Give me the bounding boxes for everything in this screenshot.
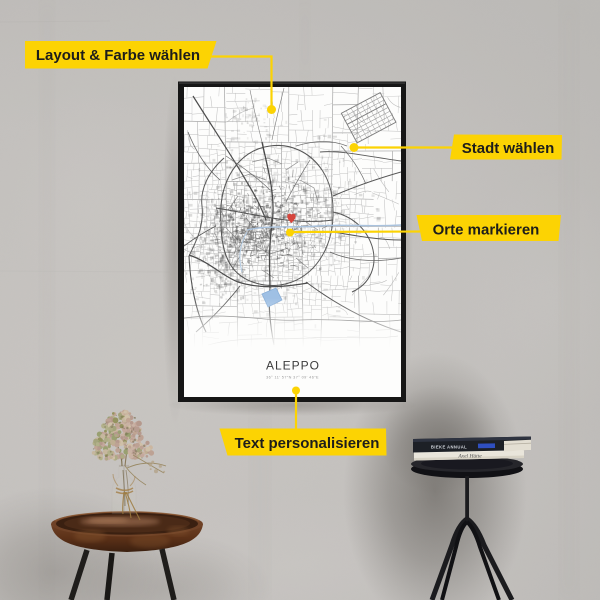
svg-text:36° 11' 57"N 37° 09' 46"E: 36° 11' 57"N 37° 09' 46"E <box>266 376 319 380</box>
svg-text:Axel Hütte: Axel Hütte <box>457 454 482 460</box>
svg-text:Layout & Farbe wählen: Layout & Farbe wählen <box>36 47 200 64</box>
svg-text:Stadt wählen: Stadt wählen <box>462 140 555 157</box>
svg-text:Orte markieren: Orte markieren <box>433 222 540 239</box>
svg-text:BIEKE ANNUAL: BIEKE ANNUAL <box>431 445 467 450</box>
svg-text:ALEPPO: ALEPPO <box>266 359 320 373</box>
svg-text:Text personalisieren: Text personalisieren <box>235 435 380 452</box>
